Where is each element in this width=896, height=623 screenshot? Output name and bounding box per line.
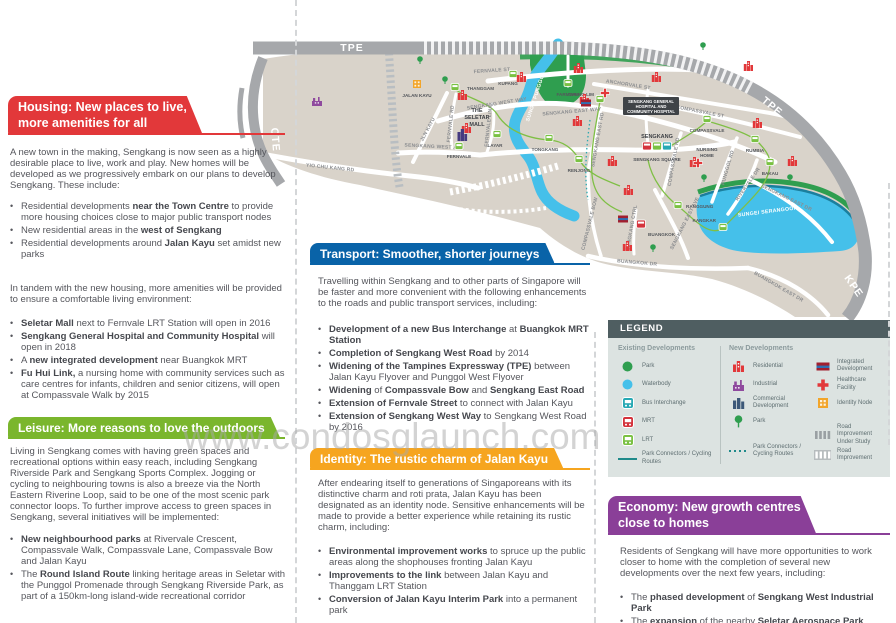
bullet-dot: • [10, 201, 21, 223]
legend-title: LEGEND [608, 320, 890, 338]
line-solid-icon [618, 456, 637, 462]
housing-title: Housing: New places to live, more amenit… [8, 96, 203, 135]
station-label: KUPANG [498, 81, 518, 86]
industrial-icon [729, 379, 748, 391]
transport-title: Transport: Smoother, shorter journeys [310, 243, 555, 265]
legend-existing-items: ParkWaterbodyBus InterchangeMRTLRTPark C… [618, 357, 718, 468]
housing-section-header: Housing: New places to live, more amenit… [8, 96, 285, 135]
lrt-icon [653, 142, 662, 150]
integrated-development-icon [581, 100, 591, 107]
legend-item-label: Industrial [753, 381, 777, 389]
map-poi-label: SENGKANG [641, 134, 673, 140]
bullet-item: •Widening of Compassvale Bow and Sengkan… [318, 385, 590, 396]
economy-title: Economy: New growth centres close to hom… [608, 496, 817, 535]
watermark: www.condosglaunch.com [183, 416, 601, 458]
bullet-dot: • [318, 324, 329, 346]
bullet-dot: • [620, 616, 631, 623]
bullet-item: •Extension of Fernvale Street to connect… [318, 398, 590, 409]
legend-new-items-col2: Integrated DevelopmentHealthcare Facilit… [813, 357, 884, 465]
legend-item-label: Residential [753, 363, 783, 371]
housing-bullet-list-2: •Seletar Mall next to Fernvale LRT Stati… [10, 318, 286, 403]
bullet-item: •Completion of Sengkang West Road by 201… [318, 348, 590, 359]
integrated-development-icon [618, 216, 628, 223]
waterbody-icon [618, 379, 637, 390]
bullet-item: •Improvements to the link between Jalan … [318, 570, 590, 592]
bullet-dot: • [10, 225, 21, 236]
legend-item: Road Improvement Under Study [813, 424, 884, 447]
hatch-gray-icon [813, 430, 832, 440]
economy-section-header: Economy: New growth centres close to hom… [608, 496, 890, 535]
legend-new-items-col1: ResidentialIndustrialCommercial Developm… [729, 357, 813, 465]
lrt-station-icon [451, 84, 459, 91]
park-icon [618, 361, 637, 372]
housing-bullet-list-1: •Residential developments near the Town … [10, 201, 286, 262]
legend-item-label: Commercial Development [753, 396, 813, 411]
bullet-item: •Widening of the Tampines Expressway (TP… [318, 361, 590, 383]
map-poi-label: SELETAR [464, 115, 489, 121]
legend-item: Industrial [729, 376, 813, 395]
legend-item-label: Road Improvement Under Study [837, 424, 884, 447]
bullet-item: •Residential developments around Jalan K… [10, 238, 286, 260]
bullet-item: •The phased development of Sengkang West… [620, 592, 890, 614]
svg-text:COMMUNITY HOSPITAL: COMMUNITY HOSPITAL [627, 109, 675, 114]
bullet-item: •A new integrated development near Buang… [10, 355, 286, 366]
legend-item: Identity Node [813, 394, 884, 413]
bullet-item: •Sengkang General Hospital and Community… [10, 331, 286, 353]
legend-existing-title: Existing Developments [618, 345, 718, 352]
legend-item: Waterbody [618, 376, 718, 395]
lrt-station-icon [509, 71, 517, 78]
legend-item: Commercial Development [729, 394, 813, 413]
mrt-station-icon [637, 220, 646, 228]
legend-item-label: Park Connectors / Cycling Routes [753, 444, 813, 459]
bullet-item: •Conversion of Jalan Kayu Interim Park i… [318, 594, 590, 616]
bus-interchange-icon [618, 397, 637, 409]
bullet-dot: • [10, 569, 21, 602]
bullet-item: •Seletar Mall next to Fernvale LRT Stati… [10, 318, 286, 329]
lrt-station-icon [564, 80, 572, 87]
bullet-item: •Environmental improvement works to spru… [318, 546, 590, 568]
bullet-dot: • [318, 385, 329, 396]
housing-intro: A new town in the making, Sengkang is no… [10, 147, 286, 191]
economy-intro: Residents of Sengkang will have more opp… [620, 546, 890, 579]
integrated-icon [813, 361, 832, 372]
lrt-station-icon [455, 143, 463, 150]
map-poi-label: THE [472, 108, 483, 114]
bullet-dot: • [10, 238, 21, 260]
station-label: TONGKANG [532, 147, 559, 152]
column-separator-left [295, 0, 297, 623]
bullet-dot: • [10, 318, 21, 329]
legend-item: MRT [618, 413, 718, 432]
lrt-station-icon [596, 96, 604, 103]
station-label: BUANGKOK [648, 232, 676, 237]
legend-item-label: LRT [642, 437, 653, 445]
bullet-item: •The expansion of the nearby Seletar Aer… [620, 616, 890, 623]
bullet-dot: • [10, 534, 21, 567]
map-legend: LEGEND Existing Developments ParkWaterbo… [608, 320, 890, 477]
legend-item-label: Park Connectors / Cycling Routes [642, 451, 718, 466]
tree-icon [729, 415, 748, 428]
legend-item: Residential [729, 357, 813, 376]
station-label: RENJONG [568, 168, 591, 173]
bullet-item: •New residential areas in the west of Se… [10, 225, 286, 236]
identity-node-icon [813, 397, 832, 409]
brochure-page: TPETPECTEKPEYIO CHU KANG RDJLN KAYUFERNV… [0, 0, 896, 623]
legend-item: LRT [618, 431, 718, 450]
station-label: COMPASSVALE [690, 128, 725, 133]
residential-building-icon [744, 61, 753, 71]
lrt-station-icon [719, 224, 727, 231]
station-label: RUMBIA [746, 148, 765, 153]
lrt-icon [618, 434, 637, 446]
legend-item-label: Bus Interchange [642, 400, 686, 408]
legend-item: Road Improvement [813, 446, 884, 465]
station-label: RANGGUNG [686, 204, 714, 209]
map-poi-label: HOME [700, 153, 714, 158]
bullet-dot: • [318, 570, 329, 592]
hatch-white-icon [813, 450, 832, 460]
legend-divider [720, 346, 721, 464]
station-label: BAKAU [762, 171, 779, 176]
legend-item-label: Park [642, 363, 654, 371]
bullet-item: •Residential developments near the Town … [10, 201, 286, 223]
transport-section-header: Transport: Smoother, shorter journeys [310, 243, 590, 265]
mrt-icon [643, 142, 652, 150]
lrt-station-icon [751, 136, 759, 143]
map-label: TPE [340, 42, 363, 54]
legend-new-title: New Developments [729, 345, 884, 352]
bullet-dot: • [10, 331, 21, 353]
commercial-icon [729, 397, 748, 409]
lrt-station-icon [575, 156, 583, 163]
lrt-station-icon [703, 116, 711, 123]
bullet-dot: • [620, 592, 631, 614]
map-poi-label: SENGKANG SQUARE [633, 157, 680, 162]
bullet-dot: • [318, 361, 329, 383]
lrt-station-icon [674, 202, 682, 209]
housing-para-2: In tandem with the new housing, more ame… [10, 283, 286, 305]
station-label: CHENG LIM [568, 92, 594, 97]
legend-item-label: MRT [642, 418, 655, 426]
station-label: KANGKAR [693, 218, 717, 223]
bullet-dot: • [318, 398, 329, 409]
legend-item: Park [729, 413, 813, 432]
column-separator-right [888, 183, 890, 445]
legend-item: Park [618, 357, 718, 376]
legend-item: Park Connectors / Cycling Routes [729, 442, 813, 461]
new-park-icon [700, 42, 706, 50]
bullet-item: •The Round Island Route linking heritage… [10, 569, 286, 602]
identity-node-icon [413, 80, 421, 88]
residential-icon [729, 360, 748, 372]
bullet-item: •New neighbourhood parks at Rivervale Cr… [10, 534, 286, 567]
bullet-dot: • [10, 368, 21, 401]
map-poi-label: NURSING [696, 147, 718, 152]
hospital-callout: SENGKANG GENERALHOSPITAL ANDCOMMUNITY HO… [623, 97, 679, 115]
bullet-item: •Fu Hui Link, a nursing home with commun… [10, 368, 286, 401]
legend-item-label: Road Improvement [837, 448, 884, 463]
legend-item: Healthcare Facility [813, 376, 884, 395]
bullet-dot: • [318, 348, 329, 359]
station-label: THANGGAM [467, 86, 494, 91]
bullet-dot: • [318, 546, 329, 568]
bus-interchange-icon [663, 142, 672, 150]
legend-item-label: Waterbody [642, 381, 671, 389]
legend-item: Integrated Development [813, 357, 884, 376]
map-poi-label: MALL [469, 122, 485, 128]
map-poi-label: JALAN KAYU [402, 93, 432, 98]
transport-intro: Travelling within Sengkang and to other … [318, 276, 590, 309]
lrt-station-icon [766, 159, 774, 166]
legend-item-label: Identity Node [837, 400, 872, 408]
mrt-icon [618, 416, 637, 428]
economy-bullet-list: •The phased development of Sengkang West… [620, 592, 890, 623]
healthcare-icon [813, 379, 832, 391]
column-separator-middle [594, 332, 596, 623]
leisure-bullet-list: •New neighbourhood parks at Rivervale Cr… [10, 534, 286, 604]
lrt-station-icon [545, 135, 553, 142]
bullet-dot: • [318, 594, 329, 616]
identity-bullet-list: •Environmental improvement works to spru… [318, 546, 590, 618]
legend-item: Bus Interchange [618, 394, 718, 413]
station-label: FERNVALE [447, 154, 471, 159]
bullet-dot: • [10, 355, 21, 366]
station-label: LAYAR [488, 143, 504, 148]
identity-intro: After endearing itself to generations of… [318, 478, 590, 533]
bullet-item: •Development of a new Bus Interchange at… [318, 324, 590, 346]
legend-item: Park Connectors / Cycling Routes [618, 450, 718, 469]
legend-item-label: Integrated Development [837, 359, 884, 374]
legend-item-label: Park [753, 418, 765, 426]
lrt-station-icon [493, 131, 501, 138]
legend-item-label: Healthcare Facility [837, 377, 884, 392]
line-dotted-icon [729, 448, 748, 454]
